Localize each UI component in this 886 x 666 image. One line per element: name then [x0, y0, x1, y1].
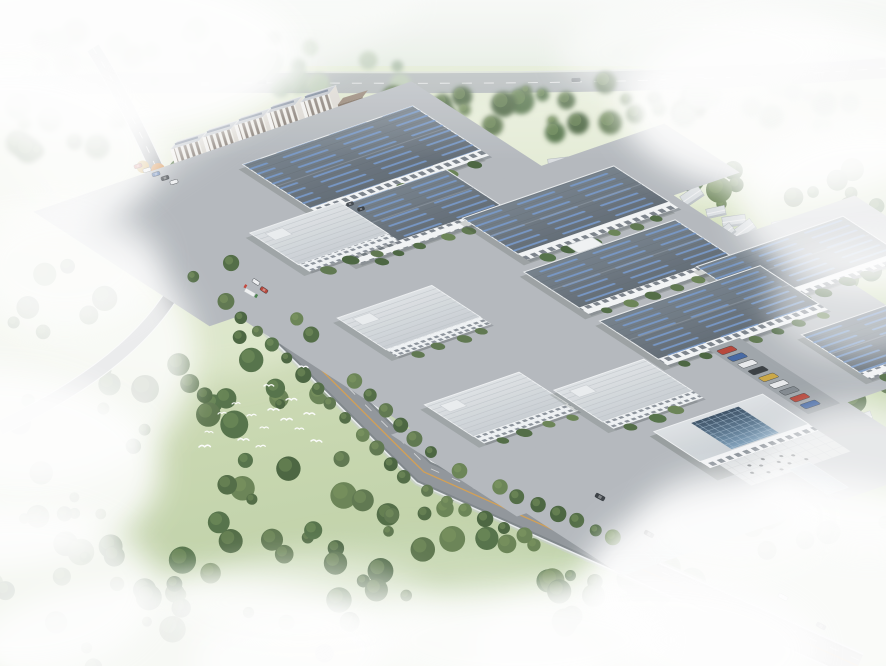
clouds-and-fog	[0, 0, 886, 666]
aerial-render-image	[0, 0, 886, 666]
scene-canvas	[0, 0, 886, 666]
atmosphere-tint	[0, 0, 886, 666]
